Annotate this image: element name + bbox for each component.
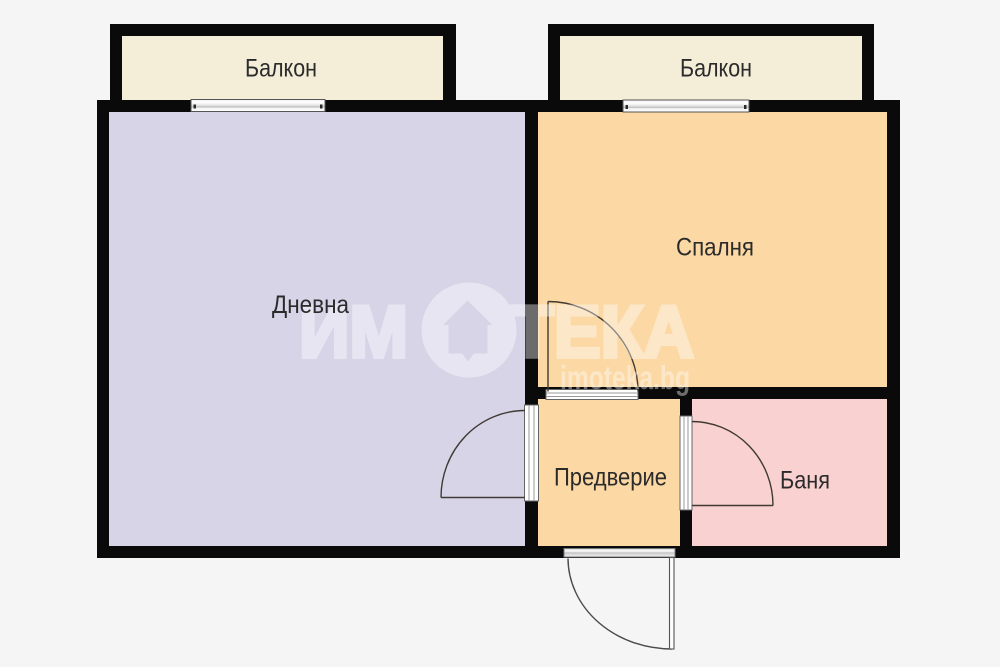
svg-text:Балкон: Балкон (680, 55, 752, 83)
svg-text:Предверие: Предверие (554, 464, 667, 492)
svg-text:Балкон: Балкон (245, 55, 317, 83)
svg-text:Спалня: Спалня (676, 234, 754, 262)
svg-text:Дневна: Дневна (272, 291, 349, 319)
svg-text:imoteka.bg: imoteka.bg (560, 359, 690, 396)
svg-text:Баня: Баня (780, 467, 830, 495)
